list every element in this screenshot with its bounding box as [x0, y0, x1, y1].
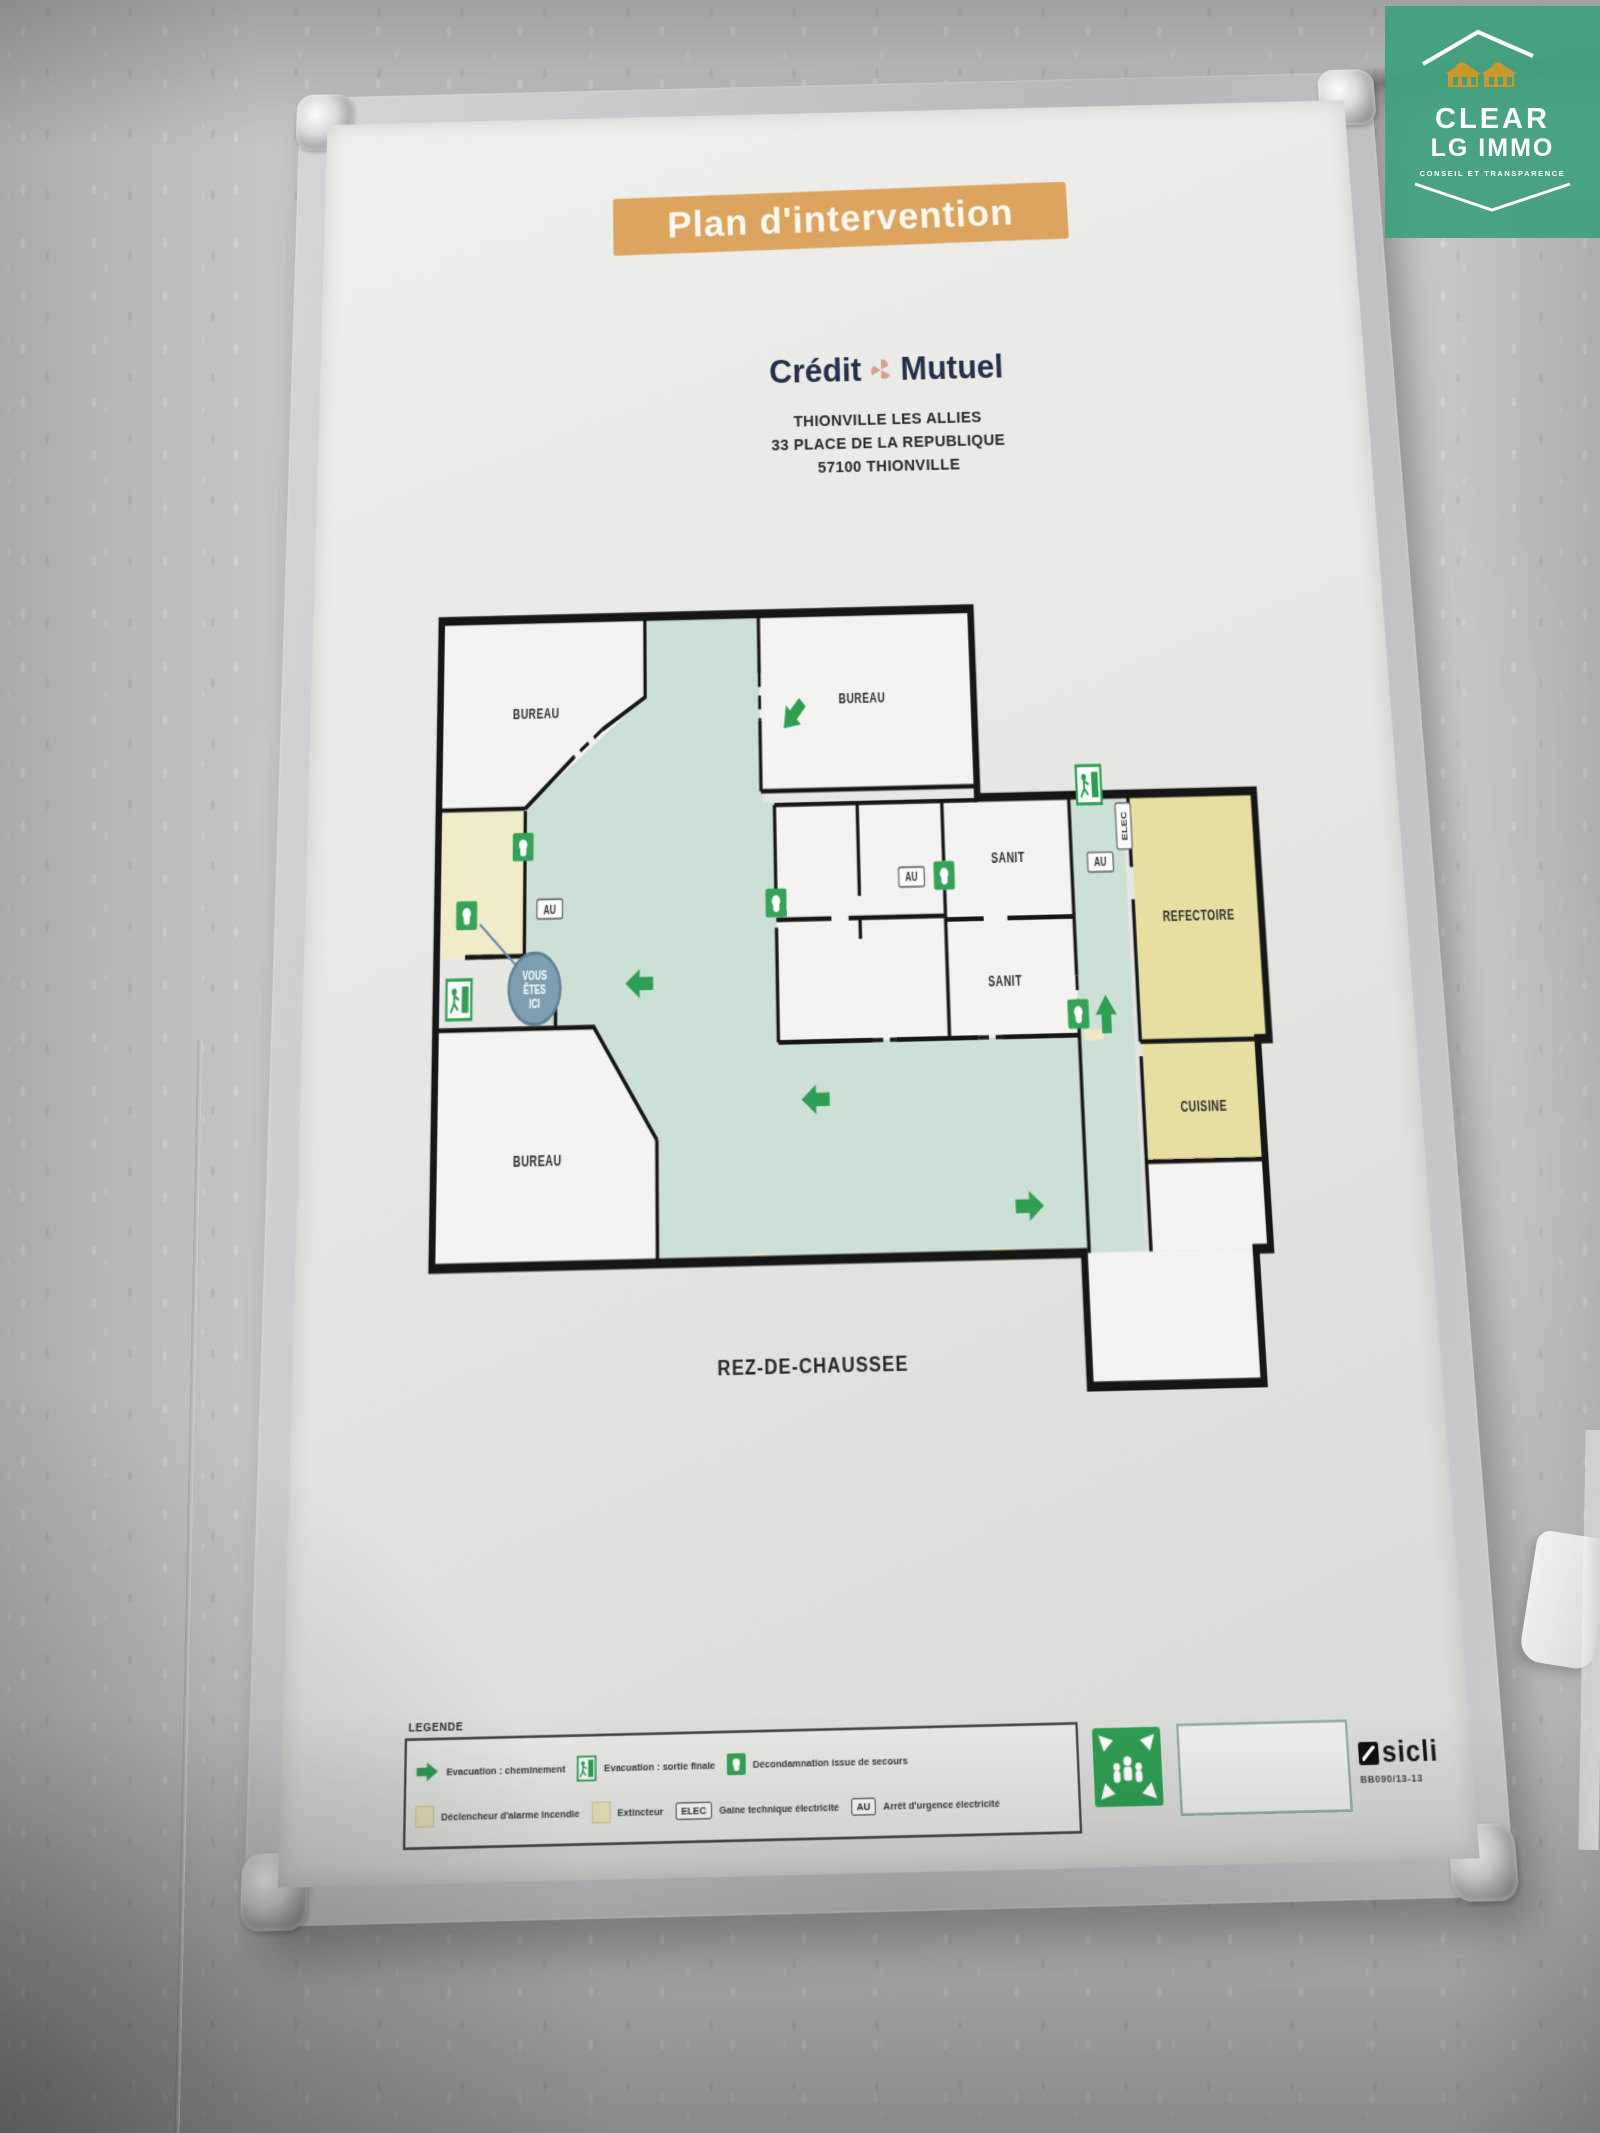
bank-name-right: Mutuel [900, 348, 1004, 388]
elec-chip: ELEC [675, 1801, 712, 1820]
door-frame-hinge [1518, 1529, 1600, 1671]
wall-shadow-left [0, 0, 260, 2133]
agency-name: CLEAR [1385, 103, 1600, 136]
final-exit-icon [446, 980, 471, 1020]
room-label-bureau-tl: BUREAU [513, 707, 560, 723]
legend-item: AU Arrêt d'urgence électricité [851, 1794, 1000, 1815]
legend-row-2: Déclencheur d'alarme incendie Extincteur… [415, 1790, 1070, 1828]
svg-text:ELEC: ELEC [1119, 811, 1130, 840]
legend-item: Evacuation : sortie finale [577, 1752, 715, 1781]
publisher-ref: BB090/13-13 [1360, 1771, 1441, 1785]
bank-logo: Crédit Mutuel [526, 342, 1248, 397]
unlock-door-icon [456, 901, 477, 930]
site-address: THIONVILLE LES ALLIES 33 PLACE DE LA REP… [525, 401, 1253, 488]
legend-label: Evacuation : sortie finale [604, 1759, 715, 1774]
legend-item: Extincteur [591, 1800, 663, 1824]
intervention-plan-poster: Plan d'intervention Crédit Mutuel [278, 100, 1480, 1888]
room-yellow-left [441, 811, 525, 958]
final-exit-icon [1076, 765, 1102, 804]
poster-title: Plan d'intervention [667, 191, 1015, 247]
you-are-here-marker: VOUS ÊTES ICI [508, 953, 560, 1026]
alarm-trigger-icon [415, 1806, 434, 1828]
legend-item: Décondamnation issue de secours [727, 1749, 908, 1775]
au-chip: AU [1087, 852, 1113, 872]
legend-label: Déclencheur d'alarme incendie [441, 1807, 580, 1823]
legend-box: Evacuation : cheminement Evacuation : so… [403, 1722, 1082, 1850]
legend-title: LEGENDE [408, 1719, 463, 1734]
photo-scene: Plan d'intervention Crédit Mutuel [0, 0, 1600, 2133]
agency-tagline: CONSEIL ET TRANSPARENCE [1385, 169, 1600, 178]
bank-name-left: Crédit [769, 352, 862, 392]
unlock-door-icon [1067, 999, 1089, 1029]
legend-empty-box [1176, 1719, 1353, 1816]
legend-item: ELEC Gaine technique électricité [675, 1798, 839, 1820]
floor-plan: AU AU AU ELEC VO [404, 588, 1363, 1461]
room-label-sanit-1: SANIT [991, 850, 1025, 866]
room-label-sanit-2: SANIT [988, 974, 1023, 991]
door-mark [1084, 1029, 1104, 1040]
legend-label: Evacuation : cheminement [446, 1763, 565, 1778]
unlock-door-icon [933, 861, 955, 890]
poster-title-banner: Plan d'intervention [613, 182, 1069, 256]
svg-text:ICI: ICI [529, 998, 540, 1012]
svg-text:AU: AU [1094, 856, 1107, 869]
final-exit-icon [577, 1755, 597, 1781]
agency-logo-roof-houses-icon [1385, 6, 1600, 101]
room-middle-block [774, 801, 949, 1043]
extinguisher-icon [591, 1802, 610, 1824]
publisher-block: sicli BB090/13-13 [1357, 1733, 1440, 1785]
au-chip: AU [537, 899, 563, 919]
agency-logo: CLEAR LG IMMO CONSEIL ET TRANSPARENCE [1385, 6, 1600, 238]
unlock-door-icon [765, 888, 786, 917]
svg-text:ÊTES: ÊTES [523, 982, 546, 997]
publisher-brand: sicli [1381, 1733, 1440, 1770]
unlock-door-icon [727, 1753, 746, 1775]
agency-logo-chevron-icon [1385, 180, 1600, 214]
legend-label: Décondamnation issue de secours [753, 1754, 908, 1770]
assembly-point-icon [1092, 1727, 1164, 1814]
elec-chip: ELEC [1115, 803, 1132, 850]
svg-text:AU: AU [905, 871, 918, 884]
legend-item: Evacuation : cheminement [416, 1759, 566, 1782]
room-label-cuisine: CUISINE [1180, 1099, 1227, 1116]
svg-text:VOUS: VOUS [522, 969, 546, 983]
room-label-bureau-tr: BUREAU [839, 691, 886, 707]
au-chip: AU [851, 1797, 877, 1815]
room-below-cuisine [1148, 1159, 1270, 1251]
legend-item: Déclencheur d'alarme incendie [415, 1802, 580, 1828]
door-frame-edge [1578, 1430, 1600, 1850]
sicli-logo-icon [1358, 1741, 1380, 1765]
agency-name-2: LG IMMO [1385, 134, 1600, 163]
svg-text:AU: AU [544, 903, 556, 916]
legend-label: Gaine technique électricité [719, 1801, 839, 1816]
legend-label: Arrêt d'urgence électricité [883, 1797, 1000, 1812]
snap-frame: Plan d'intervention Crédit Mutuel [243, 72, 1515, 1928]
room-label-refectoire: REFECTOIRE [1162, 907, 1235, 924]
legend-row-1: Evacuation : cheminement Evacuation : so… [416, 1744, 1068, 1786]
credit-mutuel-mark-icon [868, 357, 893, 383]
au-chip: AU [898, 867, 924, 887]
room-label-bureau-bl: BUREAU [513, 1153, 562, 1171]
unlock-door-icon [513, 833, 534, 862]
evac-arrow-icon [416, 1762, 440, 1782]
legend-label: Extincteur [617, 1805, 663, 1818]
wall-corner-line [175, 1040, 203, 2133]
